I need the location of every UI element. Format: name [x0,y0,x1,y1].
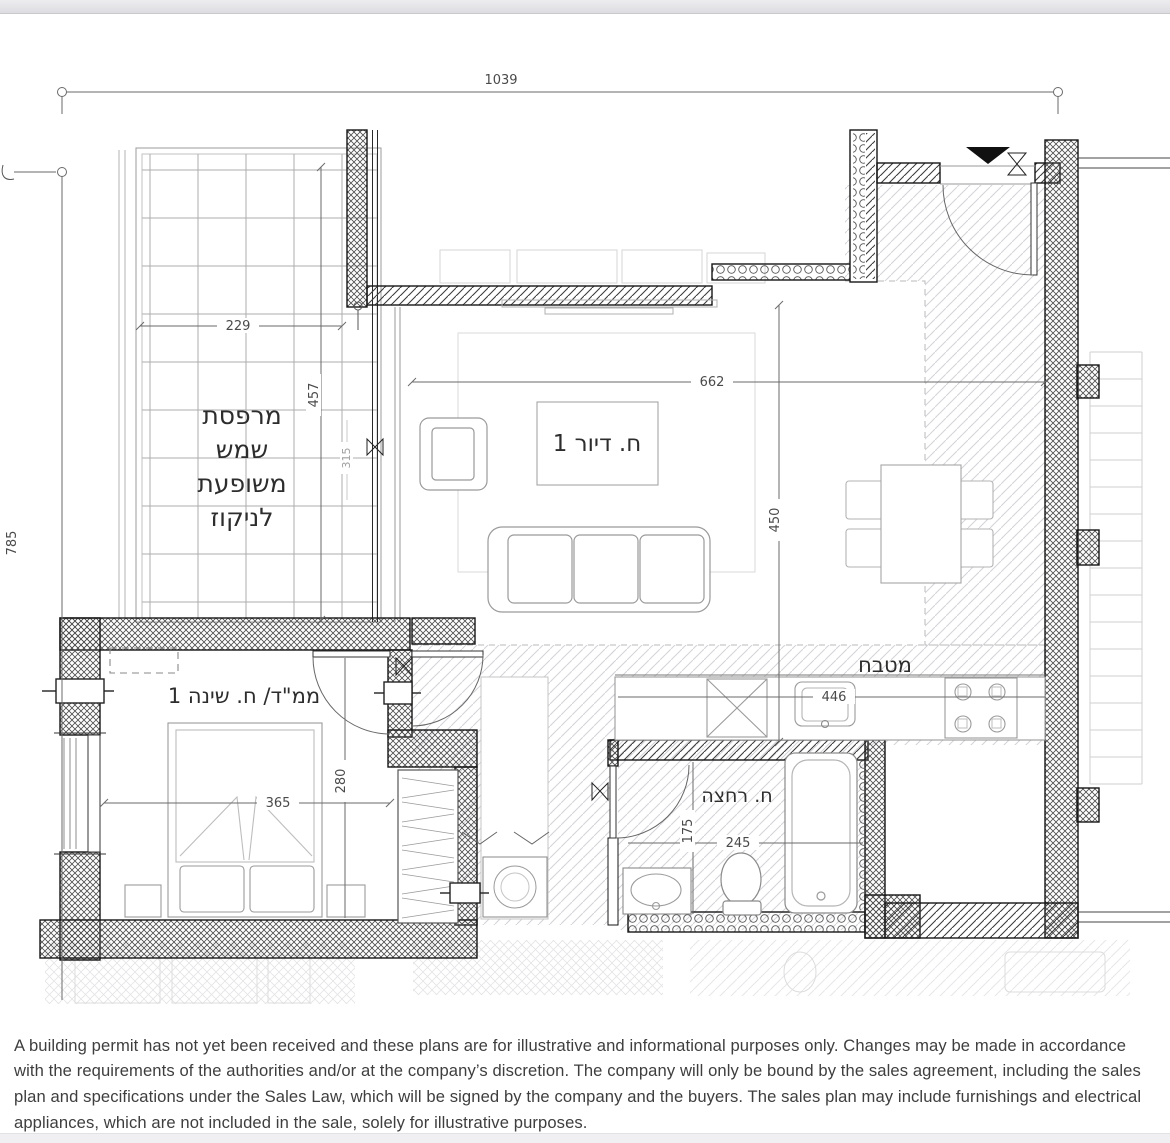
dim-balcony-width: 229 [226,319,251,334]
dim-balcony-depth: 457 [307,383,322,408]
floor-plan: 1039 785 229 457 315 662 450 446 365 280… [0,0,1170,1010]
dim-balcony-glazing: 315 [340,448,353,469]
sofa [488,527,710,612]
bedroom-label: ממ"ד/ ח. שינה 1 [168,684,320,708]
dim-living-width: 662 [700,375,725,390]
dim-bathroom-width: 245 [726,836,751,851]
svg-text:מרפסת: מרפסת [202,401,281,430]
dim-bedroom-depth: 280 [334,769,349,794]
nightstand [125,885,161,917]
page-bottom-strip [0,1133,1170,1143]
living-label: ח. דיור 1 [553,431,642,457]
nightstand [327,885,365,917]
door-mark-hourglass [1008,153,1026,175]
toilet [721,853,761,915]
armchair [420,418,487,490]
dim-living-depth: 450 [768,508,783,533]
dim-total-depth: 785 [5,531,20,556]
wardrobe [398,770,458,923]
svg-text:לניקוז: לניקוז [210,503,273,532]
dim-bathroom-depth: 175 [681,819,696,844]
dim-kitchen-counter: 446 [822,690,847,705]
bathroom-label: ח. רחצה [701,785,772,807]
bathroom-sink [623,868,691,914]
entrance-arrow [966,147,1010,164]
stairs-ghost [1090,352,1142,784]
svg-text:משופעת: משופעת [197,469,286,498]
dim-bedroom-width: 365 [266,796,291,811]
kitchen-counter [615,675,1045,740]
ac-unit-dashed [110,648,178,673]
page: 1039 785 229 457 315 662 450 446 365 280… [0,0,1170,1143]
disclaimer-text: A building permit has not yet been recei… [14,1033,1156,1136]
kitchen-label: מטבח [858,653,912,677]
bathtub [785,753,857,913]
dim-total-width: 1039 [484,73,517,88]
svg-text:שמש: שמש [216,435,268,464]
washing-machine [483,857,547,917]
